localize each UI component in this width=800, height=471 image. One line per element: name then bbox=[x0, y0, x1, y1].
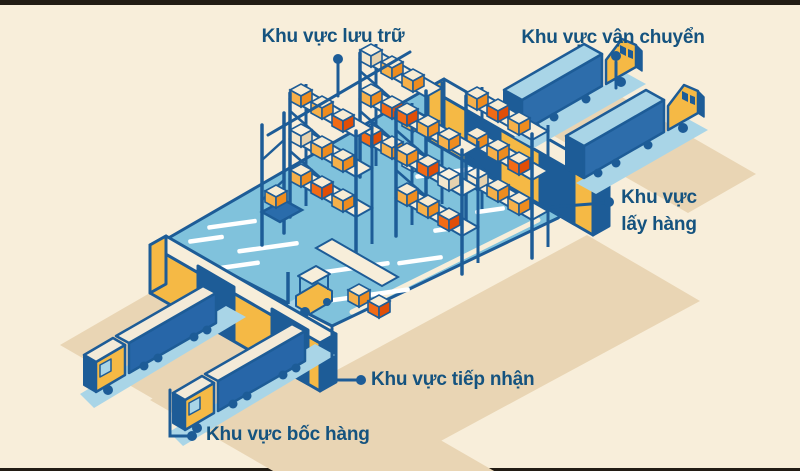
label-storage-area: Khu vực lưu trữ bbox=[262, 26, 405, 48]
label-shipping-area: Khu vực vận chuyển bbox=[521, 27, 704, 49]
label-picking-area: Khu vực lấy hàng bbox=[621, 184, 697, 238]
label-receiving-area: Khu vực tiếp nhận bbox=[371, 369, 534, 391]
label-picking-line2: lấy hàng bbox=[621, 211, 697, 238]
warehouse-diagram: Khu vực lưu trữ Khu vực vận chuyển Khu v… bbox=[0, 0, 800, 471]
label-picking-line1: Khu vực bbox=[621, 184, 697, 211]
label-loading-area: Khu vực bốc hàng bbox=[206, 424, 370, 446]
